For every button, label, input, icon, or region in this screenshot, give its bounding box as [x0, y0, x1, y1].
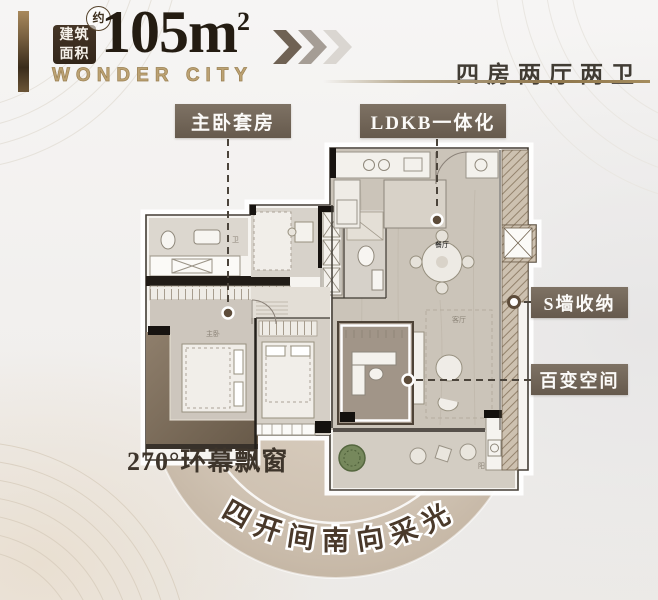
floor-plan: 卫 主卧 — [146, 148, 536, 490]
desk-study — [295, 222, 313, 242]
toilet-icon-2 — [358, 246, 374, 266]
plant-icon — [339, 445, 365, 471]
fridge-icon — [334, 180, 360, 228]
wall-wardrobe — [146, 276, 290, 286]
room-label-living: 客厅 — [452, 315, 466, 324]
sink-icon — [194, 230, 220, 244]
callout-s-wall: S墙收纳 — [531, 287, 628, 318]
kitchen-counter — [334, 152, 430, 178]
marker-master — [223, 308, 234, 319]
marker-flex — [403, 375, 414, 386]
callout-bay-window: 270°环幕飘窗 — [127, 441, 288, 478]
room-label-bath: 卫 — [232, 236, 239, 244]
callout-master-suite: 主卧套房 — [175, 104, 291, 138]
marker-swall — [509, 297, 520, 308]
bed-study — [254, 212, 291, 270]
desk-flex — [352, 352, 396, 365]
brand-wordmark: WONDER CITY — [52, 65, 253, 87]
callout-ldkb: LDKB一体化 — [360, 104, 506, 138]
gold-underline — [323, 80, 650, 83]
kitchen-cabinet-right — [466, 152, 498, 178]
layout-summary: 四房两厅两卫 — [456, 55, 642, 89]
area-value: 105m2 — [101, 2, 249, 62]
area-superscript: 2 — [237, 7, 249, 36]
marker-ldkb — [432, 215, 443, 226]
toilet-icon — [161, 231, 175, 249]
area-badge-line2: 面积 — [53, 45, 96, 64]
chevrons-icon — [273, 30, 355, 64]
area-number: 105m — [101, 0, 237, 65]
window-second — [256, 424, 315, 435]
gold-accent-bar — [18, 11, 29, 92]
area-badge: 建筑 面积 — [53, 25, 96, 64]
room-label-dining: 餐厅 — [435, 240, 449, 249]
room-label-master: 主卧 — [206, 329, 220, 338]
area-badge-line1: 建筑 — [53, 26, 96, 45]
callout-flex-space: 百变空间 — [531, 364, 628, 395]
coffee-table — [436, 355, 462, 381]
wardrobe-second — [259, 321, 317, 336]
